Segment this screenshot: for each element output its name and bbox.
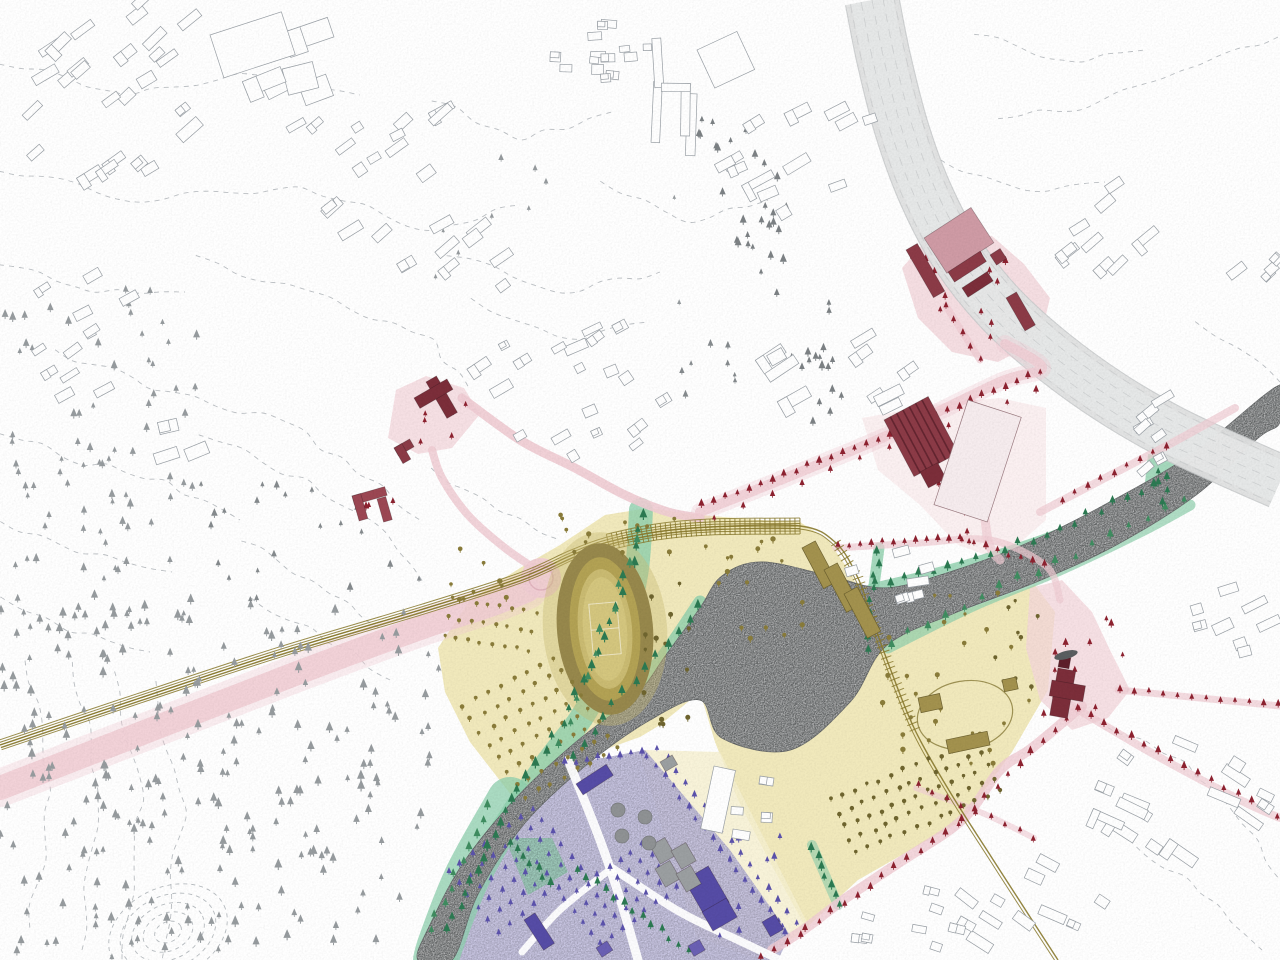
masterplan-map: [0, 0, 1280, 960]
masterplan-map-svg: [0, 0, 1280, 960]
layer-paper-grain: [0, 0, 1280, 960]
